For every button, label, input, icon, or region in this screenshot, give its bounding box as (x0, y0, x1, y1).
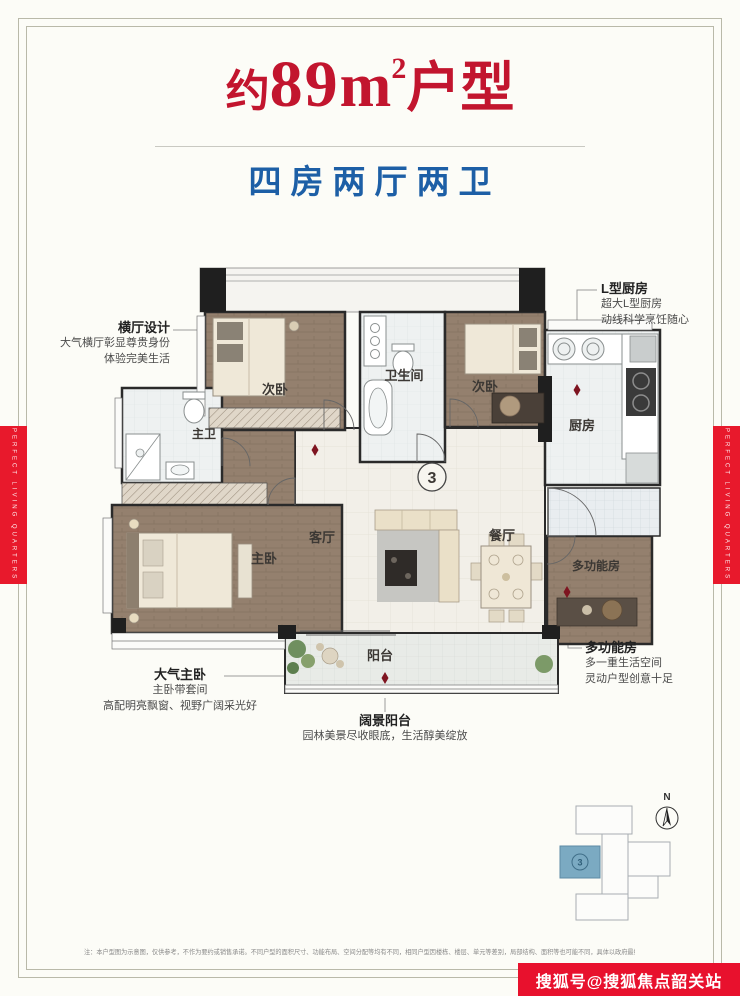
callout-master-title: 大气主卧 (55, 667, 305, 683)
compass: N (656, 792, 678, 829)
page-subtitle: 四房两厅两卫 (0, 155, 740, 203)
disclaimer-text: 注：本户型图为示意图，仅供参考，不作为要约或销售承诺。不同户型的面积尺寸、功能布… (84, 946, 635, 956)
callout-balcony-title: 阔景阳台 (270, 713, 500, 729)
title-area-unit: m (340, 52, 392, 120)
label-balcony: 阳台 (367, 648, 393, 663)
callout-master-bedroom: 大气主卧 主卧带套间 高配明亮飘窗、视野广阔采光好 (55, 667, 305, 715)
callout-multi-room: 多功能房 多一重生活空间 灵动户型创意十足 (585, 640, 725, 688)
callout-multi-line2: 灵动户型创意十足 (585, 672, 725, 688)
callout-master-line2: 高配明亮飘窗、视野广阔采光好 (55, 699, 305, 715)
entry-foyer (548, 488, 660, 536)
watermark-text: 搜狐号@搜狐焦点韶关站 (536, 968, 723, 992)
label-bedroom-b: 次卧 (472, 379, 498, 394)
right-banner-text: PERFECT LIVING QUARTERS (724, 428, 730, 581)
callout-balcony: 阔景阳台 园林美景尽收眼底，生活醇美绽放 (270, 713, 500, 745)
page-title: 约89m2户型 (0, 52, 740, 118)
top-window-band (200, 268, 545, 312)
title-superscript: 2 (391, 52, 406, 85)
label-kitchen: 厨房 (569, 418, 595, 433)
left-banner-text: PERFECT LIVING QUARTERS (11, 428, 17, 581)
title-area-number: 89 (270, 48, 340, 121)
unit-number-badge: 3 (418, 463, 446, 491)
watermark-banner: 搜狐号@搜狐焦点韶关站 (518, 963, 740, 996)
callout-kitchen-line1: 超大L型厨房 (601, 297, 733, 313)
callout-hall-line1: 大气横厅彰显尊贵身份 (20, 336, 170, 352)
compass-needle-light (663, 808, 667, 826)
callout-master-line1: 主卧带套间 (55, 683, 305, 699)
label-living: 客厅 (309, 530, 335, 545)
label-master-bath: 主卫 (192, 426, 216, 441)
compass-needle-dark (667, 808, 671, 826)
callout-kitchen-line2: 动线科学烹饪随心 (601, 313, 733, 329)
label-multi-room: 多功能房 (572, 558, 620, 573)
callout-hall-title: 横厅设计 (20, 320, 170, 336)
title-suffix: 户型 (406, 58, 514, 118)
callout-hall-line2: 体验完美生活 (20, 352, 170, 368)
callout-balcony-line1: 园林美景尽收眼底，生活醇美绽放 (270, 729, 500, 745)
callout-hall-design: 横厅设计 大气横厅彰显尊贵身份 体验完美生活 (20, 320, 170, 368)
page-header: 约89m2户型 (0, 52, 740, 118)
poster-page: PERFECT LIVING QUARTERS PERFECT LIVING Q… (0, 0, 740, 996)
site-plan: 3 N (540, 788, 710, 933)
left-red-banner: PERFECT LIVING QUARTERS (0, 426, 27, 584)
label-dining: 餐厅 (488, 528, 515, 543)
label-master-bedroom: 主卧 (251, 551, 277, 566)
multi-room-furniture (557, 598, 637, 626)
callout-multi-title: 多功能房 (585, 640, 725, 656)
callout-multi-line1: 多一重生活空间 (585, 656, 725, 672)
callout-l-kitchen: L型厨房 超大L型厨房 动线科学烹饪随心 (601, 281, 733, 329)
living-furniture (375, 510, 459, 602)
callout-kitchen-title: L型厨房 (601, 281, 733, 297)
site-unit-number: 3 (577, 858, 582, 868)
label-bedroom-a: 次卧 (262, 382, 288, 397)
multi-room (547, 536, 652, 644)
header-divider (155, 146, 585, 147)
title-prefix: 约 (226, 67, 270, 116)
label-bathroom: 卫生间 (384, 368, 423, 383)
floorplan: 3 次卧 卫生间 次卧 厨房 主卫 主卧 客厅 餐厅 多功能房 阳台 (82, 248, 667, 708)
unit-number-text: 3 (428, 470, 437, 487)
master-closet (122, 483, 267, 505)
right-red-banner: PERFECT LIVING QUARTERS (713, 426, 740, 584)
north-label: N (663, 792, 670, 803)
